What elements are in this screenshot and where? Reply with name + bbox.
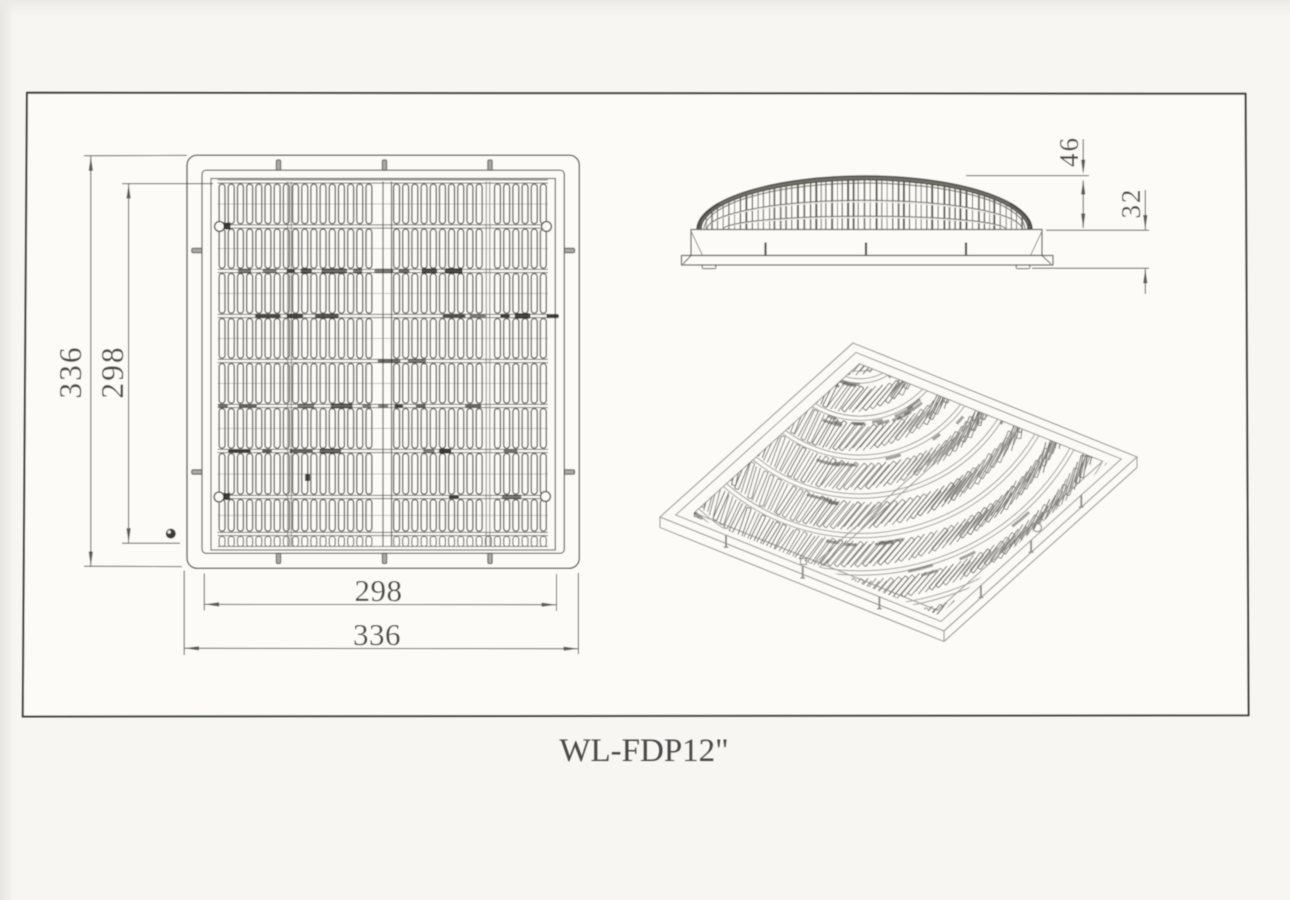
svg-text:336: 336 bbox=[53, 345, 88, 398]
svg-text:336: 336 bbox=[353, 617, 401, 652]
svg-text:WL-FDP12": WL-FDP12" bbox=[559, 733, 728, 769]
svg-text:298: 298 bbox=[355, 573, 403, 608]
svg-text:46: 46 bbox=[1054, 136, 1084, 167]
svg-text:298: 298 bbox=[95, 345, 130, 398]
svg-text:32: 32 bbox=[1116, 188, 1146, 219]
